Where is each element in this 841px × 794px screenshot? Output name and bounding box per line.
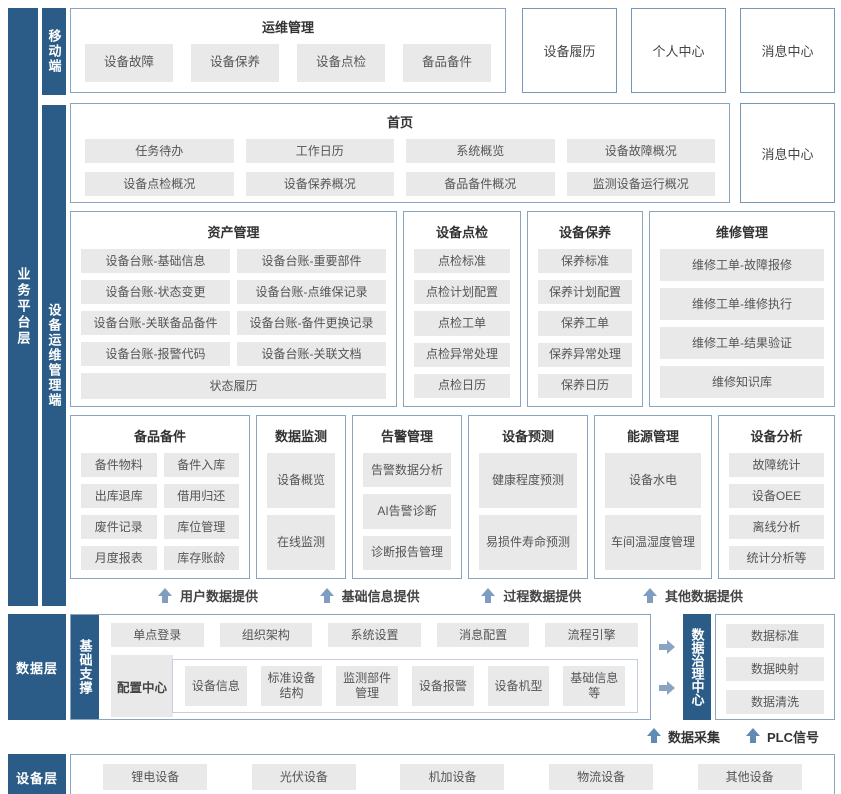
base-support-top-items: 单点登录组织架构系统设置消息配置流程引擎 — [111, 623, 638, 647]
device-maintenance-box: 设备保养 保养标准保养计划配置保养工单保养异常处理保养日历 — [527, 211, 643, 407]
config-center-row: 配置中心 设备信息标准设备结构监测部件管理设备报警设备机型基础信息等 — [111, 655, 638, 717]
device-inspection-box: 设备点检 点检标准点检计划配置点检工单点检异常处理点检日历 — [403, 211, 521, 407]
module-item: 维修知识库 — [660, 366, 824, 398]
module-item: 设备故障 — [85, 44, 173, 82]
module-item: 库存账龄 — [164, 546, 240, 570]
module-item: 诊断报告管理 — [363, 536, 451, 570]
mobile-side-box: 个人中心 — [631, 8, 726, 93]
module-item: 设备故障概况 — [567, 139, 716, 163]
module-item: AI告警诊断 — [363, 494, 451, 528]
config-items-box: 设备信息标准设备结构监测部件管理设备报警设备机型基础信息等 — [172, 659, 638, 713]
data-feed: 其他数据提供 — [643, 586, 743, 605]
energy-management-box: 能源管理 设备水电车间温湿度管理 — [594, 415, 712, 579]
module-item: 健康程度预测 — [479, 453, 577, 508]
device-inspection-title: 设备点检 — [414, 220, 510, 249]
data-layer-band: 数据层 基础支撑 单点登录组织架构系统设置消息配置流程引擎 配置中心 设备信息标… — [8, 614, 835, 720]
module-item: 系统概览 — [406, 139, 555, 163]
config-center-label: 配置中心 — [111, 655, 173, 717]
module-item: 点检工单 — [414, 311, 510, 335]
device-item: 物流设备 — [549, 764, 653, 790]
asset-items: 设备台账-基础信息设备台账-重要部件设备台账-状态变更设备台账-点维保记录设备台… — [81, 249, 386, 366]
module-item: 设备机型 — [488, 666, 550, 706]
data-feed-label: 过程数据提供 — [503, 586, 581, 605]
home-row: 首页 任务待办工作日历系统概览设备故障概况设备点检概况设备保养概况备品备件概况监… — [70, 103, 835, 203]
mobile-side-box: 设备履历 — [522, 8, 617, 93]
data-feed: 用户数据提供 — [158, 586, 258, 605]
home-box: 首页 任务待办工作日历系统概览设备故障概况设备点检概况设备保养概况备品备件概况监… — [70, 103, 730, 203]
module-item: 借用归还 — [164, 484, 240, 508]
status-history-item: 状态履历 — [81, 373, 386, 399]
module-item: 告警数据分析 — [363, 453, 451, 487]
module-item: 组织架构 — [220, 623, 313, 647]
base-support-content: 单点登录组织架构系统设置消息配置流程引擎 配置中心 设备信息标准设备结构监测部件… — [99, 615, 650, 719]
repair-management-box: 维修管理 维修工单-故障报修维修工单-维修执行维修工单-结果验证维修知识库 — [649, 211, 835, 407]
module-item: 设备台账-关联文档 — [237, 342, 386, 366]
module-item: 库位管理 — [164, 515, 240, 539]
module-item: 易损件寿命预测 — [479, 515, 577, 570]
module-item: 流程引擎 — [545, 623, 638, 647]
module-item: 备件物料 — [81, 453, 157, 477]
module-item: 监测设备运行概况 — [567, 172, 716, 196]
business-platform-layer-label: 业务平台层 — [8, 8, 38, 606]
module-item: 工作日历 — [246, 139, 395, 163]
device-prediction-title: 设备预测 — [479, 424, 577, 453]
data-feed-arrows-row: 用户数据提供 基础信息提供 过程数据提供 其他数据提供 — [70, 585, 835, 606]
governance-arrows — [655, 614, 679, 720]
alarm-management-title: 告警管理 — [363, 424, 451, 453]
mobile-side-box: 消息中心 — [740, 8, 835, 93]
module-item: 设备台账-重要部件 — [237, 249, 386, 273]
device-item: 锂电设备 — [103, 764, 207, 790]
right-arrow-icon — [659, 681, 675, 695]
base-support-box: 基础支撑 单点登录组织架构系统设置消息配置流程引擎 配置中心 设备信息标准设备结… — [70, 614, 651, 720]
monitoring-items: 设备概览在线监测 — [267, 453, 335, 570]
spare-items: 备件物料备件入库出库退库借用归还废件记录库位管理月度报表库存账龄 — [81, 453, 239, 570]
module-item: 维修工单-结果验证 — [660, 327, 824, 359]
asset-management-title: 资产管理 — [81, 220, 386, 249]
business-platform-band: 业务平台层 移动端 设备运维管理端 运维管理 设备故障设备保养设备点检备品备件 … — [8, 8, 835, 606]
up-arrow-icon — [647, 728, 661, 744]
collect-feed-label: PLC信号 — [767, 727, 819, 746]
data-feed-label: 用户数据提供 — [180, 586, 258, 605]
module-item: 备品备件概况 — [406, 172, 555, 196]
prediction-items: 健康程度预测易损件寿命预测 — [479, 453, 577, 570]
module-item: 备品备件 — [403, 44, 491, 82]
device-analysis-title: 设备分析 — [729, 424, 824, 453]
mobile-side-boxes: 设备履历个人中心消息中心 — [522, 8, 835, 93]
analysis-items: 故障统计设备OEE离线分析统计分析等 — [729, 453, 824, 570]
module-item: 系统设置 — [328, 623, 421, 647]
module-item: 备件入库 — [164, 453, 240, 477]
module-item: 点检标准 — [414, 249, 510, 273]
module-item: 数据清洗 — [726, 690, 824, 714]
device-layer-band: 设备层 锂电设备光伏设备机加设备物流设备其他设备 — [8, 754, 835, 794]
up-arrow-icon — [643, 588, 657, 604]
collect-feed: PLC信号 — [746, 727, 819, 746]
module-item: 离线分析 — [729, 515, 824, 539]
data-feed-label: 基础信息提供 — [342, 586, 420, 605]
client-label-column: 移动端 设备运维管理端 — [42, 8, 66, 606]
collect-feed: 数据采集 — [647, 727, 720, 746]
module-item: 设备保养概况 — [246, 172, 395, 196]
data-feed-label: 其他数据提供 — [665, 586, 743, 605]
module-item: 数据映射 — [726, 657, 824, 681]
module-row-1: 资产管理 设备台账-基础信息设备台账-重要部件设备台账-状态变更设备台账-点维保… — [70, 211, 835, 407]
data-monitoring-box: 数据监测 设备概览在线监测 — [256, 415, 346, 579]
data-monitoring-title: 数据监测 — [267, 424, 335, 453]
module-item: 数据标准 — [726, 624, 824, 648]
device-layer-box: 锂电设备光伏设备机加设备物流设备其他设备 — [70, 754, 835, 794]
device-item: 机加设备 — [400, 764, 504, 790]
module-item: 统计分析等 — [729, 546, 824, 570]
module-item: 保养工单 — [538, 311, 632, 335]
platform-content: 运维管理 设备故障设备保养设备点检备品备件 设备履历个人中心消息中心 首页 任务… — [70, 8, 835, 606]
module-item: 设备保养 — [191, 44, 279, 82]
asset-management-box: 资产管理 设备台账-基础信息设备台账-重要部件设备台账-状态变更设备台账-点维保… — [70, 211, 397, 407]
data-feed: 过程数据提供 — [481, 586, 581, 605]
device-ops-client-label: 设备运维管理端 — [42, 105, 66, 606]
home-title: 首页 — [85, 110, 715, 139]
data-governance-center-label: 数据治理中心 — [683, 614, 711, 720]
module-item: 监测部件管理 — [336, 666, 398, 706]
ops-management-box: 运维管理 设备故障设备保养设备点检备品备件 — [70, 8, 506, 93]
device-layer-label: 设备层 — [8, 754, 66, 794]
module-item: 设备点检 — [297, 44, 385, 82]
collect-arrows-row: 数据采集 PLC信号 — [8, 724, 835, 748]
up-arrow-icon — [320, 588, 334, 604]
module-item: 设备概览 — [267, 453, 335, 508]
module-item: 设备点检概况 — [85, 172, 234, 196]
module-item: 设备报警 — [412, 666, 474, 706]
module-item: 标准设备结构 — [261, 666, 323, 706]
device-prediction-box: 设备预测 健康程度预测易损件寿命预测 — [468, 415, 588, 579]
module-item: 出库退库 — [81, 484, 157, 508]
inspection-items: 点检标准点检计划配置点检工单点检异常处理点检日历 — [414, 249, 510, 398]
spare-parts-title: 备品备件 — [81, 424, 239, 453]
module-item: 设备OEE — [729, 484, 824, 508]
module-row-2: 备品备件 备件物料备件入库出库退库借用归还废件记录库位管理月度报表库存账龄 数据… — [70, 415, 835, 579]
module-item: 废件记录 — [81, 515, 157, 539]
module-item: 任务待办 — [85, 139, 234, 163]
module-item: 设备台账-报警代码 — [81, 342, 230, 366]
device-item: 其他设备 — [698, 764, 802, 790]
module-item: 车间温湿度管理 — [605, 515, 701, 570]
module-item: 保养标准 — [538, 249, 632, 273]
ops-management-title: 运维管理 — [85, 15, 491, 44]
module-item: 设备信息 — [185, 666, 247, 706]
module-item: 点检计划配置 — [414, 280, 510, 304]
base-support-label: 基础支撑 — [71, 615, 99, 719]
message-center-box: 消息中心 — [740, 103, 835, 203]
energy-management-title: 能源管理 — [605, 424, 701, 453]
module-item: 月度报表 — [81, 546, 157, 570]
module-item: 保养日历 — [538, 374, 632, 398]
up-arrow-icon — [481, 588, 495, 604]
alarm-items: 告警数据分析AI告警诊断诊断报告管理 — [363, 453, 451, 570]
module-item: 点检异常处理 — [414, 343, 510, 367]
module-item: 点检日历 — [414, 374, 510, 398]
device-item: 光伏设备 — [252, 764, 356, 790]
home-items: 任务待办工作日历系统概览设备故障概况设备点检概况设备保养概况备品备件概况监测设备… — [85, 139, 715, 196]
data-governance-items-box: 数据标准数据映射数据清洗 — [715, 614, 835, 720]
module-item: 设备台账-备件更换记录 — [237, 311, 386, 335]
module-item: 维修工单-故障报修 — [660, 249, 824, 281]
spare-parts-box: 备品备件 备件物料备件入库出库退库借用归还废件记录库位管理月度报表库存账龄 — [70, 415, 250, 579]
module-item: 保养异常处理 — [538, 343, 632, 367]
right-arrow-icon — [659, 640, 675, 654]
energy-items: 设备水电车间温湿度管理 — [605, 453, 701, 570]
module-item: 单点登录 — [111, 623, 204, 647]
data-feed: 基础信息提供 — [320, 586, 420, 605]
module-item: 故障统计 — [729, 453, 824, 477]
maintenance-items: 保养标准保养计划配置保养工单保养异常处理保养日历 — [538, 249, 632, 398]
up-arrow-icon — [746, 728, 760, 744]
device-maintenance-title: 设备保养 — [538, 220, 632, 249]
repair-management-title: 维修管理 — [660, 220, 824, 249]
module-item: 基础信息等 — [563, 666, 625, 706]
mobile-modules-row: 运维管理 设备故障设备保养设备点检备品备件 设备履历个人中心消息中心 — [70, 8, 835, 93]
mobile-client-label: 移动端 — [42, 8, 66, 95]
repair-items: 维修工单-故障报修维修工单-维修执行维修工单-结果验证维修知识库 — [660, 249, 824, 398]
architecture-diagram: 业务平台层 移动端 设备运维管理端 运维管理 设备故障设备保养设备点检备品备件 … — [0, 0, 841, 794]
module-item: 维修工单-维修执行 — [660, 288, 824, 320]
module-item: 设备台账-关联备品备件 — [81, 311, 230, 335]
ops-management-items: 设备故障设备保养设备点检备品备件 — [85, 44, 491, 82]
module-item: 设备台账-基础信息 — [81, 249, 230, 273]
collect-feed-label: 数据采集 — [668, 727, 720, 746]
module-item: 设备台账-点维保记录 — [237, 280, 386, 304]
device-analysis-box: 设备分析 故障统计设备OEE离线分析统计分析等 — [718, 415, 835, 579]
module-item: 设备台账-状态变更 — [81, 280, 230, 304]
alarm-management-box: 告警管理 告警数据分析AI告警诊断诊断报告管理 — [352, 415, 462, 579]
module-item: 设备水电 — [605, 453, 701, 508]
module-item: 在线监测 — [267, 515, 335, 570]
up-arrow-icon — [158, 588, 172, 604]
module-item: 消息配置 — [437, 623, 530, 647]
data-layer-label: 数据层 — [8, 614, 66, 720]
module-item: 保养计划配置 — [538, 280, 632, 304]
